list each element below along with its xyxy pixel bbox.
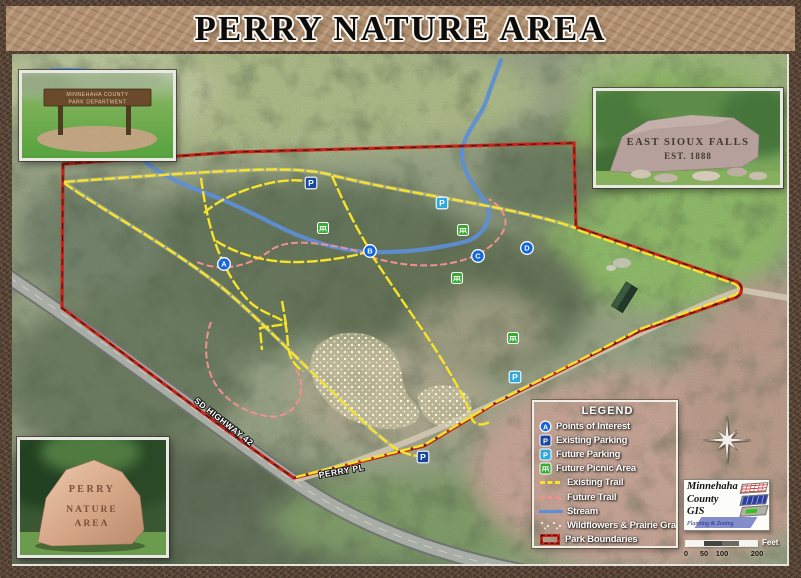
legend-item-stream: Stream — [539, 504, 676, 518]
legend-item-label: Park Boundaries — [565, 534, 638, 545]
boulder-text-line3: AREA — [75, 519, 110, 529]
legend-item-label: Future Parking — [556, 449, 620, 460]
scale-tick: 50 — [700, 549, 708, 558]
stone-text-line2: EST. 1888 — [664, 151, 712, 161]
legend-item-future-trail: Future Trail — [539, 490, 676, 504]
svg-text:P: P — [439, 198, 445, 208]
scale-bar: 050100200 Feet — [680, 535, 798, 563]
stone-text-line1: EAST SIOUX FALLS — [627, 137, 750, 148]
svg-text:P: P — [543, 436, 548, 445]
picnic-marker — [458, 225, 469, 236]
legend-title: LEGEND — [539, 405, 676, 417]
scale-bar-unit: Feet — [762, 538, 778, 547]
legend-item-points-of-interest: APoints of Interest — [539, 419, 676, 433]
scale-tick: 200 — [751, 549, 764, 558]
parking-existing-marker: P — [417, 451, 429, 463]
frame-bottom — [0, 566, 801, 578]
poi-marker: A — [218, 258, 231, 271]
inset-photo-county-sign: MINNEHAHA COUNTY PARK DEPARTMENT — [19, 70, 176, 161]
picnic-marker — [452, 273, 463, 284]
page-title: PERRY NATURE AREA — [195, 9, 607, 49]
svg-text:P: P — [543, 451, 548, 460]
sign-line1: MINNEHAHA COUNTY — [66, 92, 128, 98]
picnic-marker — [508, 333, 519, 344]
scale-tick: 100 — [716, 549, 729, 558]
legend-item-label: Future Trail — [567, 492, 616, 503]
poi-marker: D — [521, 242, 534, 255]
svg-text:A: A — [543, 424, 548, 431]
svg-text:P: P — [308, 178, 314, 188]
legend-rows: APoints of InterestPExisting ParkingPFut… — [539, 419, 676, 547]
scale-tick: 0 — [684, 549, 688, 558]
svg-text:P: P — [512, 372, 518, 382]
parking-existing-marker: P — [305, 177, 317, 189]
sign-line2: PARK DEPARTMENT — [69, 100, 127, 106]
gis-map-layers-icon — [741, 483, 767, 518]
frame-left — [0, 54, 12, 566]
poi-marker: C — [472, 250, 485, 263]
svg-text:D: D — [524, 244, 530, 253]
poi-marker: B — [364, 245, 377, 258]
parking-future-marker: P — [436, 197, 448, 209]
legend-item-park-boundaries: Park Boundaries — [539, 533, 676, 547]
scale-bar-segments — [686, 541, 757, 546]
legend-item-existing-trail: Existing Trail — [539, 476, 676, 490]
legend-item-label: Wildflowers & Prairie Grass — [567, 520, 678, 531]
legend-item-label: Existing Trail — [567, 477, 623, 488]
legend-item-label: Points of Interest — [556, 421, 630, 432]
inset-photo-perry-stone: PERRY NATURE AREA — [17, 437, 169, 558]
gis-department: Planning & Zoning — [687, 521, 734, 527]
legend: LEGEND APoints of InterestPExisting Park… — [532, 400, 678, 548]
perry-nature-area-map: ABCDPPPP SD HIGHWAY 42 PERRY PL MINNEHAH… — [0, 0, 801, 578]
legend-item-future-picnic-area: Future Picnic Area — [539, 462, 676, 476]
svg-text:C: C — [475, 252, 481, 261]
picnic-marker — [318, 223, 329, 234]
title-band: PERRY NATURE AREA — [6, 6, 795, 51]
legend-item-label: Existing Parking — [556, 435, 627, 446]
legend-item-future-parking: PFuture Parking — [539, 447, 676, 461]
legend-item-existing-parking: PExisting Parking — [539, 433, 676, 447]
svg-text:A: A — [221, 260, 227, 269]
legend-item-label: Stream — [567, 506, 598, 517]
inset-photo-east-sioux-falls-stone: EAST SIOUX FALLS EST. 1888 — [593, 88, 783, 188]
parking-future-marker: P — [509, 371, 521, 383]
svg-text:B: B — [367, 247, 373, 256]
boulder-text-line1: PERRY — [69, 484, 116, 495]
svg-text:P: P — [420, 452, 426, 462]
boulder-text-line2: NATURE — [66, 505, 117, 515]
legend-item-label: Future Picnic Area — [556, 463, 636, 474]
frame-right — [789, 54, 801, 566]
legend-item-wildflowers-prairie-grass: Wildflowers & Prairie Grass — [539, 518, 676, 532]
gis-logo: Minnehaha County GIS Planning & Zoning — [683, 479, 770, 531]
